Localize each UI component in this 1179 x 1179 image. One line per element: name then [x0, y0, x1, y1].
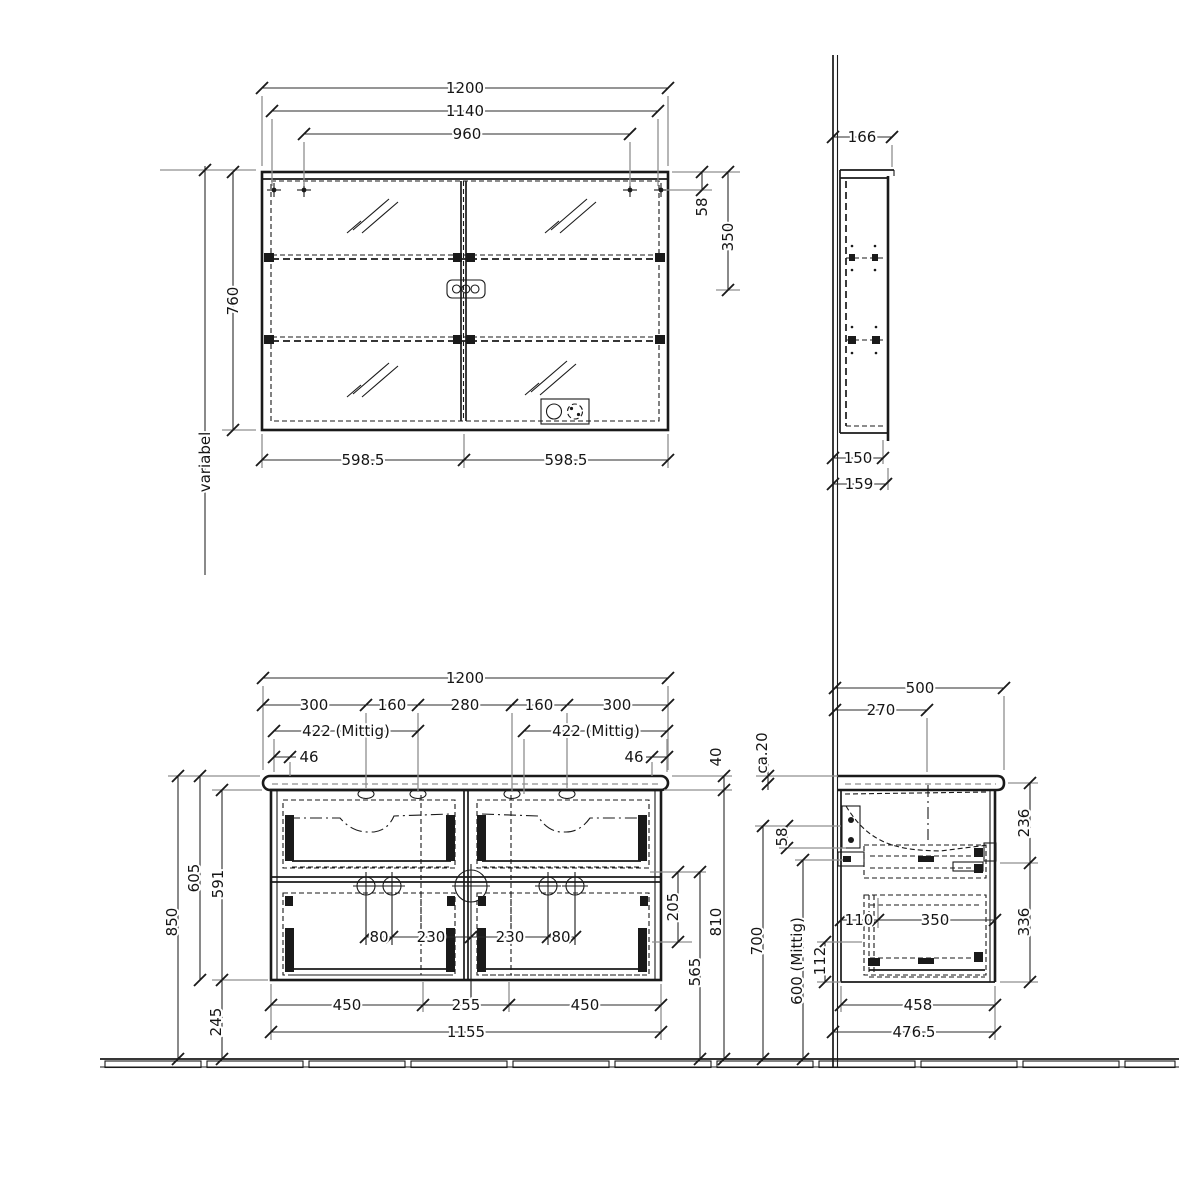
- dim-depth-270: 270: [867, 701, 896, 719]
- upper-drawer-right: [477, 800, 649, 868]
- dim-mirror-offset-58: 58: [693, 197, 711, 216]
- dim-inner-230-left: 230: [417, 928, 446, 946]
- washbasin-top-side: [838, 776, 1004, 790]
- dim-inner-80-left: 80: [369, 928, 388, 946]
- shelf-line-lower: [264, 335, 665, 344]
- mounting-point-marks: [267, 183, 668, 197]
- dim-mirror-width-960: 960: [453, 125, 482, 143]
- vanity-side-view: [838, 776, 1004, 982]
- dim-ca20: ca.20: [753, 732, 771, 773]
- dim-height-810: 810: [707, 908, 725, 937]
- dim-depth-500: 500: [906, 679, 935, 697]
- dim-mirror-offset-350: 350: [719, 223, 737, 252]
- dim-side-350: 350: [921, 911, 950, 929]
- shelf-line-upper: [264, 253, 665, 262]
- dim-seg-300-right: 300: [603, 696, 632, 714]
- dim-bottom-450-left: 450: [333, 996, 362, 1014]
- dim-height-245: 245: [207, 1008, 225, 1037]
- side-shelf-upper: [846, 245, 886, 272]
- dim-mittig-left: 422 (Mittig): [302, 722, 390, 740]
- dim-bottom-255: 255: [452, 996, 481, 1014]
- dim-mirror-width-total: 1200: [446, 79, 484, 97]
- dim-side-58: 58: [773, 827, 791, 846]
- dim-height-850: 850: [163, 908, 181, 937]
- dim-mirror-door-left: 598.5: [342, 451, 385, 469]
- vanity-cabinet-body: [271, 790, 661, 980]
- dim-mirror-height-760: 760: [224, 287, 242, 316]
- dim-mirror-door-right: 598.5: [545, 451, 588, 469]
- dim-height-565: 565: [686, 958, 704, 987]
- dim-side-336: 336: [1015, 908, 1033, 937]
- dim-bottom-450-right: 450: [571, 996, 600, 1014]
- vanity-front-view: [263, 776, 668, 1010]
- dim-offset-46-right: 46: [624, 748, 643, 766]
- dim-side-700: 700: [748, 927, 766, 956]
- dim-mirror-width-1140: 1140: [446, 102, 484, 120]
- dim-inner-80-right: 80: [551, 928, 570, 946]
- technical-drawing-canvas: 1200 1140 960 760 variabel 598.5 598.5 5…: [0, 0, 1179, 1179]
- dim-seg-280: 280: [451, 696, 480, 714]
- dim-seg-160-left: 160: [378, 696, 407, 714]
- dim-vanity-width-total: 1200: [446, 669, 484, 687]
- side-shelf-lower: [846, 326, 886, 355]
- dim-mirror-depth-150: 150: [844, 449, 873, 467]
- dim-mirror-variabel: variabel: [196, 432, 214, 493]
- dim-side-112: 112: [811, 947, 829, 976]
- dim-side-458: 458: [904, 996, 933, 1014]
- dim-mirror-depth-166: 166: [848, 128, 877, 146]
- mirror-cabinet-side-view: [840, 170, 894, 441]
- dim-side-110: 110: [845, 911, 874, 929]
- dim-inner-230-right: 230: [496, 928, 525, 946]
- dim-mittig-right: 422 (Mittig): [552, 722, 640, 740]
- dim-side-476: 476.5: [893, 1023, 936, 1041]
- dim-top-thickness-40: 40: [707, 747, 725, 766]
- dim-height-591: 591: [209, 870, 227, 899]
- mirror-cabinet-front-view: [262, 172, 668, 430]
- upper-drawer-side: [864, 843, 996, 878]
- dim-height-605: 605: [185, 864, 203, 893]
- dim-inner-205: 205: [664, 893, 682, 922]
- power-socket-icon: [541, 399, 589, 424]
- dim-mirror-depth-159: 159: [845, 475, 874, 493]
- floor-line: [100, 1059, 1179, 1068]
- dim-seg-300-left: 300: [300, 696, 329, 714]
- technical-drawing-page: 1200 1140 960 760 variabel 598.5 598.5 5…: [0, 0, 1179, 1179]
- mounting-bracket: [838, 806, 864, 866]
- dim-side-600-mittig: 600 (Mittig): [788, 917, 806, 1005]
- dim-offset-46-left: 46: [299, 748, 318, 766]
- dim-side-236: 236: [1015, 809, 1033, 838]
- upper-drawer-left: [283, 800, 455, 868]
- wall-line: [833, 55, 838, 1067]
- washbasin-top: [263, 776, 668, 790]
- mirror-front-dimensions: 1200 1140 960 760 variabel 598.5 598.5 5…: [160, 79, 740, 575]
- dim-bottom-1155: 1155: [447, 1023, 485, 1041]
- dim-seg-160-right: 160: [525, 696, 554, 714]
- lower-drawer-side: [864, 895, 986, 977]
